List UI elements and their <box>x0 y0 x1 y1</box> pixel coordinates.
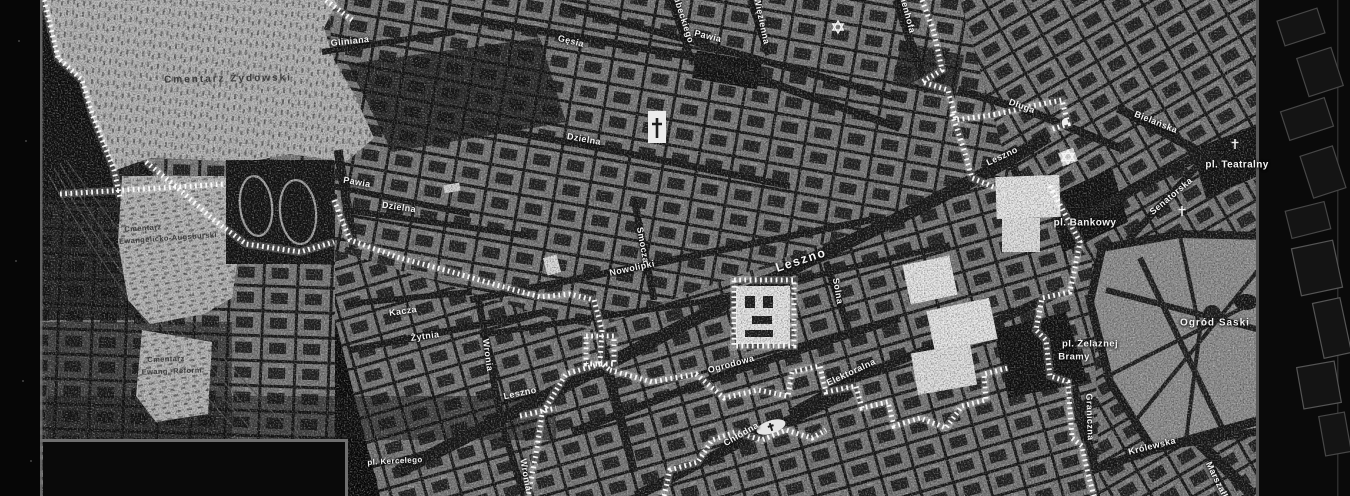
map-canvas[interactable]: GlinianaGęsiaLubeckiegoPawiaWięziennaZam… <box>0 0 1350 496</box>
church-cross-icon <box>648 111 666 143</box>
frame-line-left <box>40 0 43 496</box>
inset-frame-top <box>40 439 348 442</box>
inset-frame-right <box>345 439 348 496</box>
white-dot-icon <box>1062 119 1068 125</box>
map-artwork <box>0 0 1350 496</box>
map-sheet-right-edge <box>1256 0 1350 496</box>
inset-panel <box>43 442 345 496</box>
